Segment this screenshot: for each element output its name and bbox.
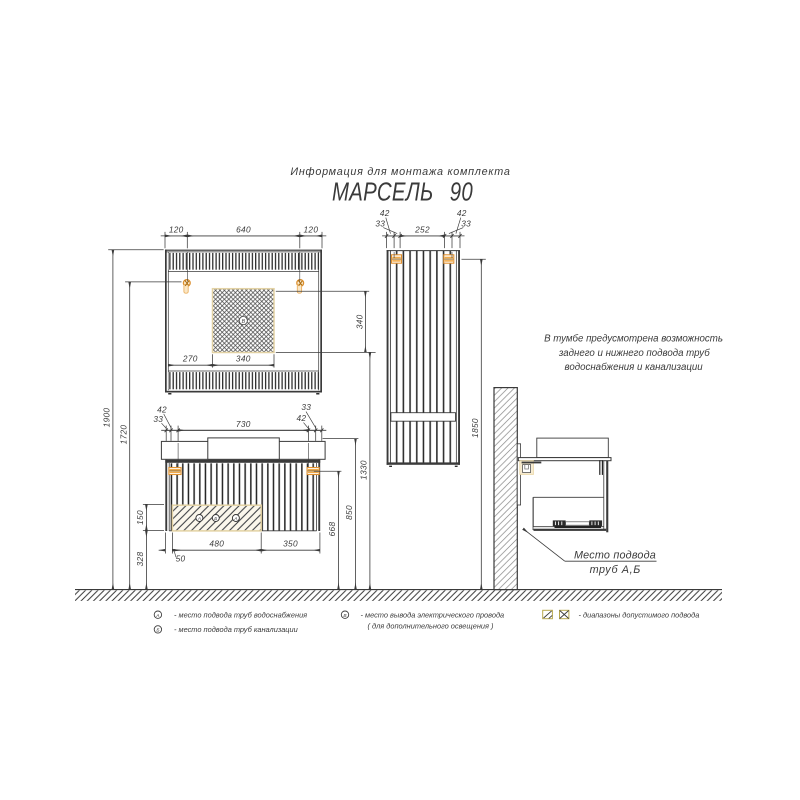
svg-text:- место подвода труб водоснаб: - место подвода труб водоснабжения (174, 610, 307, 619)
svg-text:В тумбе предусмотрена возможно: В тумбе предусмотрена возможность (544, 334, 723, 345)
svg-text:640: 640 (236, 225, 251, 235)
svg-text:120: 120 (169, 225, 184, 235)
svg-text:- место подвода труб канализа: - место подвода труб канализации (174, 625, 298, 634)
svg-text:Место подвода: Место подвода (574, 550, 656, 562)
svg-text:заднего и нижнего подвода труб: заднего и нижнего подвода труб (558, 348, 710, 359)
svg-text:350: 350 (283, 539, 298, 549)
svg-text:42: 42 (380, 208, 390, 218)
svg-text:- место вывода электрического: - место вывода электрического провода (361, 610, 505, 619)
svg-text:труб А,Б: труб А,Б (590, 564, 641, 576)
svg-text:252: 252 (414, 224, 430, 234)
svg-text:33: 33 (301, 402, 311, 412)
svg-text:50: 50 (176, 553, 186, 563)
svg-text:328: 328 (135, 552, 145, 567)
svg-text:730: 730 (236, 419, 251, 429)
svg-text:33: 33 (375, 218, 385, 228)
svg-text:А: А (155, 613, 159, 619)
svg-text:668: 668 (327, 522, 337, 537)
svg-text:42: 42 (457, 208, 467, 218)
svg-text:270: 270 (182, 354, 198, 364)
svg-text:Б: Б (214, 516, 217, 521)
svg-text:480: 480 (209, 539, 224, 549)
svg-text:33: 33 (461, 218, 471, 228)
svg-text:340: 340 (354, 314, 364, 329)
svg-text:Б: Б (156, 628, 159, 634)
svg-text:1330: 1330 (359, 460, 369, 480)
svg-text:33: 33 (153, 414, 163, 424)
svg-text:( для дополнительного освещени: ( для дополнительного освещения ) (368, 622, 494, 631)
svg-text:1720: 1720 (118, 425, 128, 445)
svg-text:А: А (197, 516, 201, 521)
svg-text:МАРСЕЛЬ 90: МАРСЕЛЬ 90 (332, 177, 473, 206)
svg-text:А: А (233, 516, 237, 521)
svg-text:Информация для монтажа комплек: Информация для монтажа комплекта (290, 166, 510, 178)
svg-text:- диапазоны допустимого подво: - диапазоны допустимого подвода (579, 610, 700, 619)
svg-text:1900: 1900 (101, 408, 111, 428)
svg-text:850: 850 (344, 505, 354, 520)
svg-text:340: 340 (236, 354, 251, 364)
svg-text:150: 150 (135, 510, 145, 525)
svg-text:В: В (242, 319, 246, 325)
svg-text:водоснабжения и канализации: водоснабжения и канализации (565, 362, 704, 373)
svg-text:120: 120 (304, 225, 319, 235)
svg-text:42: 42 (157, 404, 167, 414)
svg-text:1850: 1850 (470, 418, 480, 438)
svg-text:42: 42 (296, 413, 306, 423)
